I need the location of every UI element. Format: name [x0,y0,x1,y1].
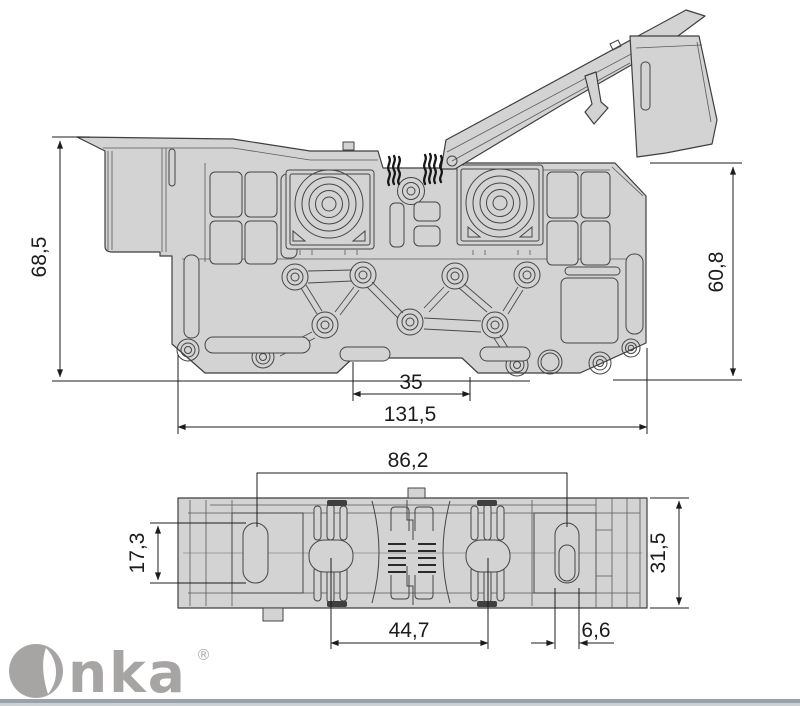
hinged-cover [441,10,717,169]
registered-mark: ® [196,646,211,664]
dim-label-overall-depth: 31,5 [647,533,670,574]
front-view [77,10,717,376]
dim-label-mount-slot-span: 86,2 [388,449,429,472]
claw-slot [169,149,175,186]
dim-label-din-notch: 35 [399,371,422,394]
top-tab [343,142,354,150]
spring-pad-left [286,170,374,255]
left-oblong-slot [243,523,268,583]
dim-label-slot-width: 6,6 [581,619,610,642]
bottom-latch-tab [263,608,283,621]
dim-label-overall-width: 131,5 [384,403,437,426]
top-view [178,488,647,621]
drawing-canvas: 68,5 60,8 35 131,5 [0,0,800,706]
onka-logo: nka ® [9,641,211,705]
dim-label-contact-span: 44,7 [389,619,430,642]
dimension-overall-depth: 31,5 [647,498,689,608]
logo-text: nka [68,641,187,705]
dim-label-body-height: 60,8 [705,252,728,293]
dim-label-slot-length: 17,3 [126,533,149,574]
top-latch-tab [408,488,425,498]
technical-drawing: 68,5 60,8 35 131,5 [0,0,800,706]
spring-pad-right [457,165,543,255]
left-pad-grid [205,163,297,264]
footer-bar [0,699,800,703]
dim-label-overall-height: 68,5 [28,237,51,278]
